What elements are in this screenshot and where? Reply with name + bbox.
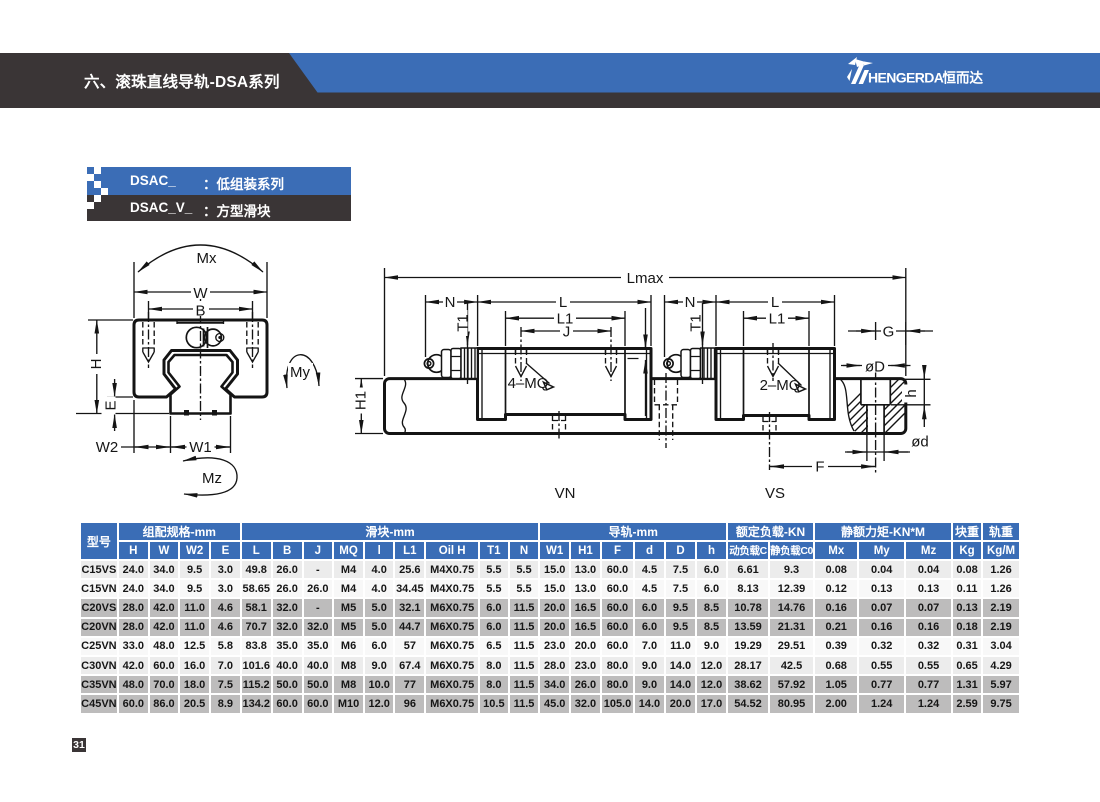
svg-text:W: W	[193, 285, 208, 302]
svg-text:2–MQ: 2–MQ	[760, 377, 801, 394]
svg-text:G: G	[883, 324, 895, 341]
svg-text:ød: ød	[911, 434, 929, 451]
svg-text:T1: T1	[455, 314, 472, 332]
svg-text:h: h	[903, 389, 920, 397]
svg-text:L: L	[559, 294, 567, 311]
svg-text:N: N	[685, 294, 696, 311]
svg-text:4–MQ: 4–MQ	[508, 375, 549, 392]
svg-text:L: L	[771, 294, 779, 311]
svg-text:Mx: Mx	[197, 250, 217, 267]
svg-text:W2: W2	[96, 439, 119, 456]
svg-text:H: H	[88, 359, 105, 370]
svg-text:L1: L1	[769, 311, 786, 328]
svg-text:E: E	[103, 400, 120, 410]
svg-text:N: N	[445, 294, 456, 311]
svg-text:Mz: Mz	[202, 470, 222, 487]
svg-text:T1: T1	[688, 314, 705, 332]
svg-text:J: J	[563, 324, 571, 341]
svg-text:F: F	[815, 459, 824, 476]
svg-text:My: My	[290, 364, 310, 381]
svg-text:øD: øD	[865, 359, 885, 376]
svg-text:Lmax: Lmax	[627, 270, 664, 287]
svg-text:H1: H1	[352, 391, 369, 410]
svg-text:VS: VS	[765, 485, 785, 502]
svg-text:B: B	[195, 303, 205, 320]
svg-text:VN: VN	[555, 485, 576, 502]
svg-text:W1: W1	[189, 439, 212, 456]
